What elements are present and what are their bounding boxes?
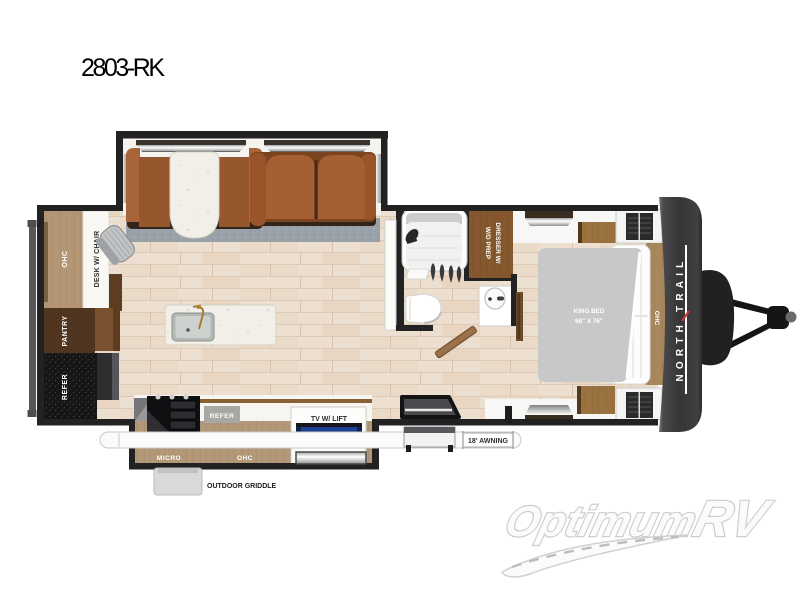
- svg-text:REFER: REFER: [62, 374, 69, 400]
- svg-text:TV W/ LIFT: TV W/ LIFT: [311, 416, 348, 423]
- svg-text:MICRO: MICRO: [157, 455, 181, 462]
- svg-text:KING BED: KING BED: [574, 308, 605, 315]
- svg-text:REFER: REFER: [210, 413, 235, 420]
- svg-text:PANTRY: PANTRY: [62, 316, 69, 347]
- svg-text:DRESSER W/: DRESSER W/: [494, 222, 501, 263]
- svg-text:OUTDOOR GRIDDLE: OUTDOOR GRIDDLE: [207, 483, 277, 490]
- svg-text:18' AWNING: 18' AWNING: [468, 438, 508, 445]
- svg-text:2803-RK: 2803-RK: [81, 54, 165, 82]
- svg-text:68" X 76": 68" X 76": [575, 318, 603, 325]
- svg-text:OHC: OHC: [653, 311, 660, 326]
- svg-text:OHC: OHC: [62, 250, 69, 267]
- svg-text:W/D PREP: W/D PREP: [484, 227, 491, 260]
- svg-text:OHC: OHC: [237, 455, 253, 462]
